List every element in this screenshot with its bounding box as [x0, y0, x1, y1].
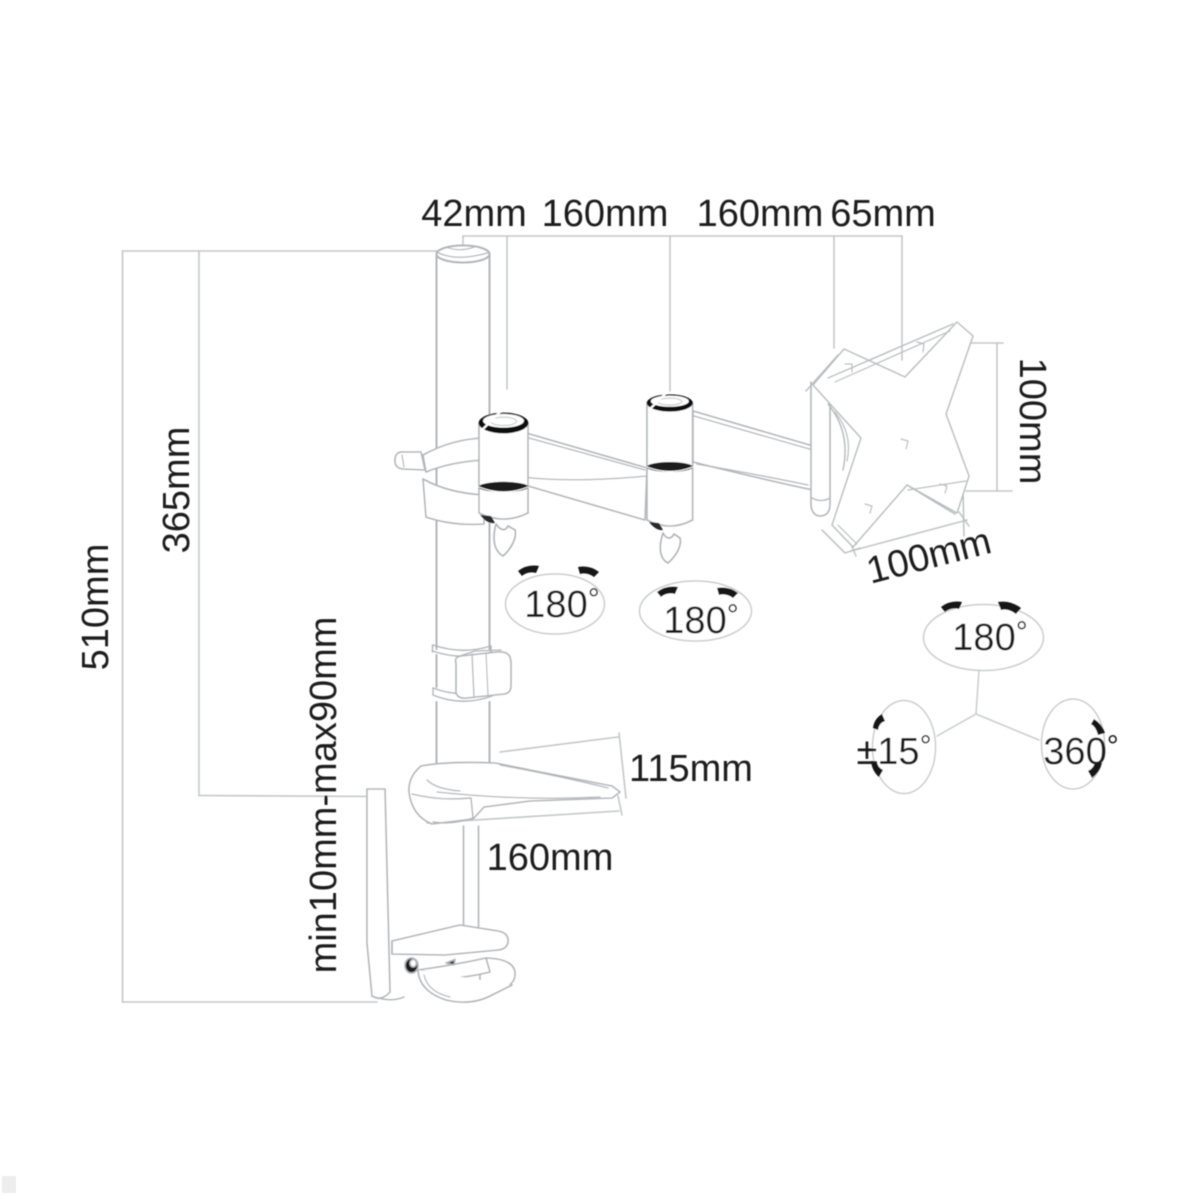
svg-text:100mm: 100mm — [1011, 358, 1053, 485]
svg-text:160mm: 160mm — [487, 837, 614, 879]
svg-text:42mm: 42mm — [421, 193, 527, 235]
svg-text:65mm: 65mm — [830, 193, 936, 235]
svg-text:360°: 360° — [1043, 730, 1118, 773]
svg-text:min10mm-max90mm: min10mm-max90mm — [303, 617, 345, 974]
svg-text:100mm: 100mm — [862, 520, 995, 592]
svg-text:365mm: 365mm — [156, 427, 198, 554]
svg-text:510mm: 510mm — [75, 544, 117, 671]
svg-text:160mm: 160mm — [542, 193, 669, 235]
svg-text:115mm: 115mm — [629, 748, 753, 790]
svg-text:160mm: 160mm — [697, 193, 824, 235]
